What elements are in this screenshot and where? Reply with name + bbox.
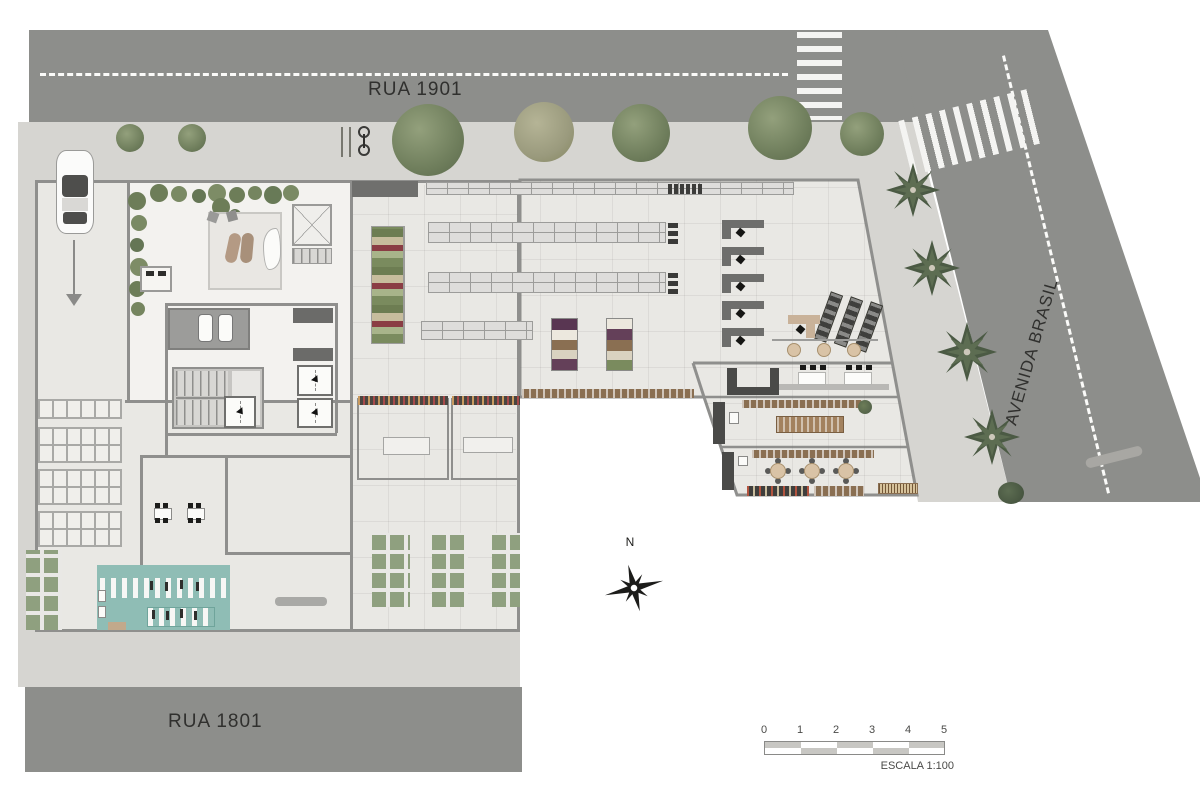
scale-bar-strip — [764, 741, 945, 755]
gondola-endcap-1 — [668, 222, 678, 244]
storefront-sign — [878, 483, 918, 494]
bicycle-icon — [194, 611, 197, 620]
bush-icon — [840, 112, 884, 156]
checkout-counter-5 — [722, 328, 764, 347]
storage-units-row-2 — [38, 427, 122, 463]
cafe-table-1 — [787, 343, 801, 357]
bicycle-icon — [180, 609, 183, 618]
core-east-wall — [335, 303, 338, 433]
produce-island-2 — [606, 318, 633, 371]
office-desk-1 — [150, 503, 174, 523]
bush-icon — [116, 124, 144, 152]
display-counter-dark — [747, 486, 809, 496]
main-divider-wall — [350, 183, 353, 632]
tree-icon — [514, 102, 574, 162]
crate-grid-1 — [372, 533, 410, 607]
scale-bar: 0 1 2 3 4 5 ESCALA 1:100 — [758, 724, 968, 770]
elevator-cab-2 — [297, 365, 333, 396]
car-windshield — [62, 175, 88, 197]
market-service-counter — [352, 181, 418, 197]
storage-units-row-3 — [38, 469, 122, 505]
checkout-counter-4 — [722, 301, 764, 320]
service-counter-long — [779, 384, 889, 390]
restaurant2-island — [776, 416, 844, 433]
dining-table-1 — [798, 372, 826, 385]
boh-wall-v2 — [225, 457, 228, 555]
corridor-bench — [275, 597, 327, 606]
scale-tick: 5 — [934, 724, 954, 736]
bicycle-icon — [150, 581, 153, 590]
display-counter-wood — [814, 486, 864, 496]
checkout-counter-1 — [722, 220, 764, 239]
produce-island-1 — [551, 318, 578, 371]
stair-flight-up — [176, 371, 228, 396]
restaurant3-appliance — [738, 456, 748, 466]
gondola-endcap-2 — [668, 272, 678, 294]
street-label-rua-1801: RUA 1801 — [168, 711, 263, 733]
core-north-wall — [165, 303, 337, 306]
technical-panel-1 — [198, 314, 213, 342]
elevator-cab-1 — [224, 396, 256, 428]
reception-equipment — [146, 271, 154, 276]
street-label-rua-1901: RUA 1901 — [368, 79, 463, 101]
lobby-stair-treads — [292, 248, 332, 264]
gondola-shelf-row-2 — [428, 272, 666, 293]
elevator-shaft-2 — [293, 348, 333, 361]
lobby-west-wall — [127, 183, 130, 403]
palm-tree-icon — [886, 163, 940, 217]
tree-icon — [748, 96, 812, 160]
restaurant2-plant — [858, 400, 872, 414]
stair-rail — [176, 397, 228, 399]
bicycle-icon — [358, 126, 370, 156]
bike-room-step — [108, 622, 126, 630]
shop-display-shelf-1 — [358, 396, 448, 405]
palm-tree-icon — [904, 240, 960, 296]
kitchen-counter-h — [727, 387, 779, 395]
wood-counter-h — [788, 315, 820, 324]
crate-grid-2 — [432, 533, 468, 607]
ramp-arrow-head-icon — [66, 294, 82, 306]
checkout-counter-2 — [722, 247, 764, 266]
crate-grid-3 — [492, 533, 520, 607]
bicycle-icon — [166, 611, 169, 620]
palm-tree-icon — [937, 322, 997, 382]
checkout-counter-3 — [722, 274, 764, 293]
boh-wall-h2 — [225, 552, 352, 555]
stair-flight-down — [176, 400, 228, 425]
reception-desk — [140, 266, 172, 292]
bike-rack-post — [341, 127, 343, 157]
car-roof — [62, 198, 88, 211]
bike-room-sink-2 — [98, 606, 106, 618]
skylight-shaft — [292, 204, 332, 246]
round-table-3 — [838, 463, 854, 479]
restaurant2-appliance — [729, 412, 739, 424]
shop-counter-2 — [463, 437, 513, 453]
kitchen-counter-v2 — [770, 368, 779, 388]
cafe-table-3 — [847, 343, 861, 357]
shop-counter-1 — [383, 437, 430, 455]
bicycle-icon — [196, 582, 199, 591]
ramp-arrow-shaft — [73, 240, 75, 294]
floor-plan: RUA 1901 RUA 1801 AVENIDA BRASIL N 0 1 2… — [0, 0, 1200, 800]
bicycle-icon — [165, 582, 168, 591]
cafe-table-2 — [817, 343, 831, 357]
scale-tick: 0 — [754, 724, 774, 736]
shopping-carts — [668, 184, 702, 194]
car-rear-window — [63, 212, 87, 224]
boh-wall-h — [140, 455, 352, 458]
tree-icon — [612, 104, 670, 162]
bike-room-sink-1 — [98, 590, 106, 602]
s-curve-bench — [263, 228, 281, 270]
restaurant2-cabinet — [713, 402, 725, 444]
dining-chairs-1 — [800, 365, 806, 370]
storage-units-row-1 — [38, 399, 122, 419]
scale-tick: 4 — [898, 724, 918, 736]
car-icon — [56, 150, 94, 234]
market-south-shelf — [522, 389, 694, 398]
core-south-wall — [165, 433, 337, 436]
elevator-shaft-1 — [293, 308, 333, 323]
gondola-shelf-row-1 — [428, 222, 666, 243]
restaurant3-shelf — [752, 450, 874, 458]
produce-display-left — [371, 226, 405, 344]
bicycle-icon — [180, 580, 183, 589]
dining-table-2 — [844, 372, 872, 385]
wood-counter-v — [806, 322, 815, 338]
gondola-shelf-row-3 — [421, 321, 533, 340]
bike-deck-1 — [100, 578, 228, 598]
wall-shelf-row — [426, 182, 794, 195]
restaurant2-shelf — [742, 400, 862, 408]
round-table-2 — [804, 463, 820, 479]
planter-bushes-left — [128, 192, 146, 210]
planter-bushes-top — [150, 184, 168, 202]
scale-tick: 2 — [826, 724, 846, 736]
scale-bar-row-2 — [765, 748, 944, 754]
restaurant3-cabinet — [722, 452, 734, 490]
reception-equipment-2 — [158, 271, 166, 276]
compass-rose-icon: N — [600, 532, 668, 624]
office-desk-2 — [183, 503, 207, 523]
dining-chairs-2 — [846, 365, 852, 370]
scale-tick: 3 — [862, 724, 882, 736]
bush-icon — [178, 124, 206, 152]
scale-tick: 1 — [790, 724, 810, 736]
shop-display-shelf-2 — [452, 396, 520, 405]
cafe-counter-line — [772, 339, 878, 341]
bush-icon — [998, 482, 1024, 504]
round-table-1 — [770, 463, 786, 479]
tree-icon — [392, 104, 464, 176]
scale-caption: ESCALA 1:100 — [881, 760, 954, 772]
technical-panel-2 — [218, 314, 233, 342]
bicycle-icon — [152, 610, 155, 619]
bike-rack-post — [349, 127, 351, 157]
storage-units-row-4 — [38, 511, 122, 547]
crate-grid-west — [26, 550, 62, 630]
compass-north-label: N — [626, 535, 635, 549]
elevator-cab-3 — [297, 398, 333, 428]
